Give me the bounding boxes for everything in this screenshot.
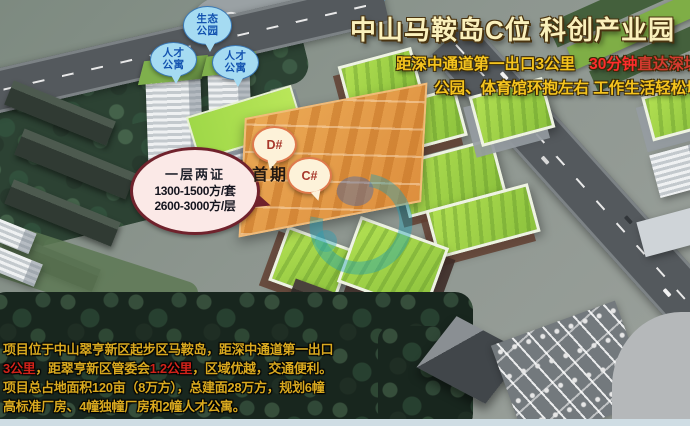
talent-apartment-label: 人才公寓: [161, 48, 186, 72]
subtitle-line-2: 公园、体育馆环抱左右 工作生活轻松切: [434, 76, 690, 98]
block-d-label-bubble: D#: [252, 126, 297, 163]
eco-park-label: 生态公园: [195, 14, 220, 38]
description-line-4: 高标准厂房、4幢独幢厂房和2幢人才公寓。: [3, 398, 363, 417]
description-line-3: 项目总占地面积120亩（8万方），总建面28万方，规划6幢: [3, 379, 363, 398]
block-c-label: C#: [302, 169, 318, 183]
logo-dot-icon: [315, 230, 337, 252]
subtitle-minutes-highlight: 30分钟: [589, 56, 637, 73]
car: [624, 215, 633, 224]
page-title: 中山马鞍岛C位 科创产业园: [350, 10, 675, 47]
description-text: ，距翠亨新区管委会: [35, 361, 149, 376]
subtitle-destination-text: 直达深圳宝: [637, 56, 690, 73]
distance-highlight: 3公里: [3, 361, 35, 376]
unit-area-per-suite: 1300-1500方/套: [154, 184, 235, 200]
block-c-label-bubble: C#: [287, 157, 332, 194]
waterline-strip: [0, 419, 690, 426]
talent-apartment-label-bubble: 人才公寓: [150, 42, 197, 77]
description-text: ，区域优越，交通便利。: [192, 361, 332, 376]
unit-info-bubble: 一层两证 1300-1500方/套 2600-3000方/层: [130, 147, 260, 235]
subtitle-distance-text: 距深中通道第一出口3公里: [396, 56, 575, 73]
project-description: 项目位于中山翠亨新区起步区马鞍岛，距深中通道第一出口 3公里，距翠亨新区管委会1…: [3, 341, 363, 416]
unit-info-title: 一层两证: [165, 167, 225, 184]
bubble-tail: [205, 43, 215, 52]
eco-park-label-bubble: 生态公园: [183, 6, 232, 45]
talent-apartment-label: 人才公寓: [223, 51, 248, 75]
talent-apartment-label-bubble: 人才公寓: [212, 45, 259, 80]
distance-highlight: 1.2公里: [150, 361, 193, 376]
aerial-promo-image: 生态公园 人才公寓 人才公寓 D# C# 首期 一层两证 1300-1500方/…: [0, 0, 690, 426]
subtitle-line-1: 距深中通道第一出口3公里30分钟直达深圳宝: [396, 52, 690, 74]
block-d-label: D#: [267, 138, 283, 152]
bubble-tail: [171, 75, 181, 84]
car: [541, 156, 550, 165]
car: [663, 288, 672, 297]
bubble-tail: [233, 78, 243, 87]
unit-area-per-floor: 2600-3000方/层: [154, 199, 235, 215]
white-building: [649, 142, 690, 198]
description-line-2: 3公里，距翠亨新区管委会1.2公里，区域优越，交通便利。: [3, 360, 363, 379]
first-phase-label: 首期: [252, 161, 288, 185]
description-line-1: 项目位于中山翠亨新区起步区马鞍岛，距深中通道第一出口: [3, 341, 363, 360]
